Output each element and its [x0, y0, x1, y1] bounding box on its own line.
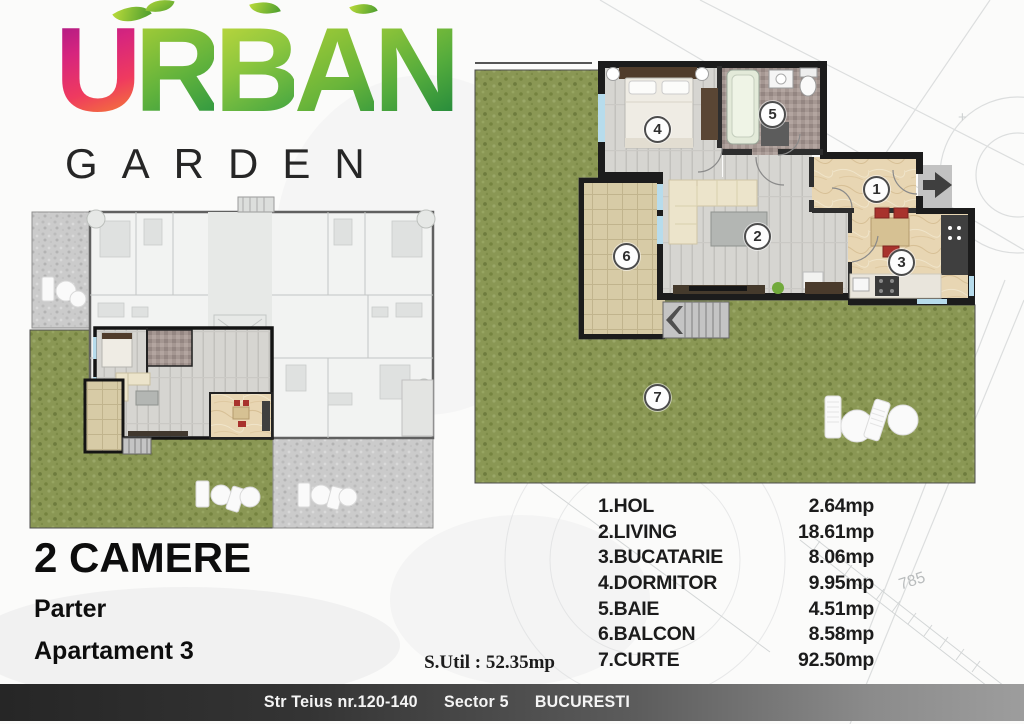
room-marker-living: 2 [744, 223, 771, 250]
room-list-row: 7.CURTE 92.50mp [598, 648, 874, 674]
room-marker-hol: 1 [863, 176, 890, 203]
room-marker-dormitor: 4 [644, 116, 671, 143]
address-city: BUCURESTI [535, 693, 630, 712]
room-name: 5.BAIE [598, 597, 659, 623]
apartment-type-title: 2 CAMERE [34, 534, 251, 582]
room-name: 3.BUCATARIE [598, 545, 723, 571]
address-sector: Sector 5 [444, 693, 509, 712]
room-marker-curte: 7 [644, 384, 671, 411]
toilet-icon [800, 68, 817, 96]
room-list-row: 5.BAIE 4.51mp [598, 597, 874, 623]
room-name: 7.CURTE [598, 648, 679, 674]
address-text: Str Teius nr.120-140 Sector 5 BUCURESTI [0, 693, 630, 712]
stairs-icon [663, 302, 729, 338]
room-list-row: 4.DORMITOR 9.95mp [598, 571, 874, 597]
room-name: 2.LIVING [598, 520, 677, 546]
brand-word-garden: GARDEN [55, 140, 465, 188]
room-area: 2.64mp [809, 494, 874, 520]
dimension-label: 785 [897, 569, 928, 593]
room-area: 8.06mp [809, 545, 874, 571]
tv-console-icon [673, 285, 765, 294]
room-list-row: 1.HOL 2.64mp [598, 494, 874, 520]
address-bar: Str Teius nr.120-140 Sector 5 BUCURESTI [0, 684, 1024, 721]
highlighted-apartment [85, 328, 272, 454]
room-area: 92.50mp [798, 648, 874, 674]
room-marker-balcon: 6 [613, 243, 640, 270]
bathtub-icon [727, 70, 759, 144]
apartment-number-label: Apartament 3 [34, 637, 251, 666]
floorplan-apartment: 1 2 3 4 5 6 7 [473, 60, 978, 485]
room-area: 8.58mp [809, 622, 874, 648]
room-list-row: 6.BALCON 8.58mp [598, 622, 874, 648]
address-street: Str Teius nr.120-140 [264, 693, 418, 712]
patio-gray [32, 212, 90, 328]
title-block: 2 CAMERE Parter Apartament 3 [34, 534, 251, 666]
brand-logo: URBAN GARDEN [55, 10, 465, 188]
room-area: 9.95mp [809, 571, 874, 597]
room-area-list: 1.HOL 2.64mp 2.LIVING 18.61mp 3.BUCATARI… [598, 494, 874, 674]
room-list-row: 2.LIVING 18.61mp [598, 520, 874, 546]
floor-level-label: Parter [34, 595, 251, 624]
room-list-row: 3.BUCATARIE 8.06mp [598, 545, 874, 571]
cabinet-icon [805, 282, 843, 294]
floorplan-overview [28, 195, 436, 535]
sink-icon [769, 70, 793, 88]
usable-area-label: S.Util : 52.35mp [377, 652, 555, 674]
room-marker-bucatarie: 3 [888, 249, 915, 276]
room-area: 4.51mp [809, 597, 874, 623]
room-name: 6.BALCON [598, 622, 695, 648]
room-name: 1.HOL [598, 494, 654, 520]
brochure-page: 785 +++ URBAN GARDEN [0, 0, 1024, 724]
room-name: 4.DORMITOR [598, 571, 717, 597]
plant-icon [772, 282, 784, 294]
yard-gray [273, 438, 433, 528]
brand-word-urban: URBAN [55, 10, 465, 130]
room-marker-baie: 5 [759, 101, 786, 128]
room-area: 18.61mp [798, 520, 874, 546]
